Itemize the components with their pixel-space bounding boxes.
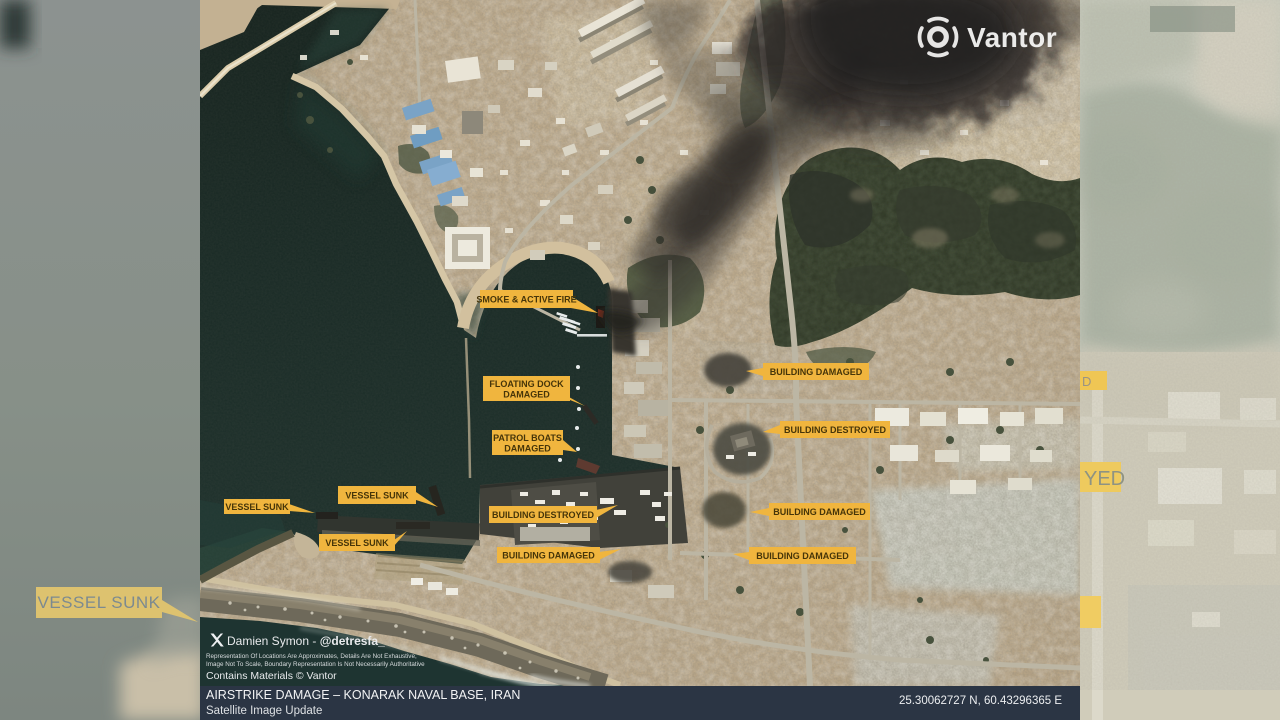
svg-text:PATROL BOATS: PATROL BOATS: [493, 433, 562, 443]
svg-text:VESSEL SUNK: VESSEL SUNK: [38, 593, 161, 612]
svg-text:DAMAGED: DAMAGED: [504, 444, 551, 454]
svg-text:Satellite Image Update: Satellite Image Update: [206, 705, 322, 717]
svg-text:BUILDING DAMAGED: BUILDING DAMAGED: [773, 507, 866, 517]
svg-text:AIRSTRIKE DAMAGE – KONARAK NAV: AIRSTRIKE DAMAGE – KONARAK NAVAL BASE, I…: [206, 688, 520, 702]
svg-text:Contains Materials © Vantor: Contains Materials © Vantor: [206, 670, 337, 682]
svg-text:Representation Of Locations Ar: Representation Of Locations Are Approxim…: [206, 653, 417, 660]
svg-text:Vantor: Vantor: [967, 22, 1057, 53]
svg-text:25.30062727 N, 60.43296365 E: 25.30062727 N, 60.43296365 E: [899, 695, 1062, 707]
svg-text:YED: YED: [1084, 468, 1125, 490]
svg-text:FLOATING DOCK: FLOATING DOCK: [489, 379, 564, 389]
svg-text:Image Not To Scale, Boundary R: Image Not To Scale, Boundary Representat…: [206, 661, 425, 668]
svg-text:VESSEL SUNK: VESSEL SUNK: [345, 491, 409, 501]
svg-text:Damien Symon - @detresfa_: Damien Symon - @detresfa_: [227, 634, 385, 648]
svg-text:BUILDING DAMAGED: BUILDING DAMAGED: [756, 551, 849, 561]
svg-text:D: D: [1082, 374, 1091, 389]
svg-text:DAMAGED: DAMAGED: [503, 390, 550, 400]
svg-text:BUILDING DAMAGED: BUILDING DAMAGED: [770, 367, 863, 377]
svg-text:VESSEL SUNK: VESSEL SUNK: [225, 502, 289, 512]
svg-text:SMOKE & ACTIVE FIRE: SMOKE & ACTIVE FIRE: [476, 295, 576, 305]
svg-text:BUILDING DAMAGED: BUILDING DAMAGED: [502, 551, 595, 561]
svg-text:BUILDING DESTROYED: BUILDING DESTROYED: [492, 510, 595, 520]
svg-text:BUILDING DESTROYED: BUILDING DESTROYED: [784, 425, 887, 435]
svg-text:VESSEL SUNK: VESSEL SUNK: [325, 538, 389, 548]
